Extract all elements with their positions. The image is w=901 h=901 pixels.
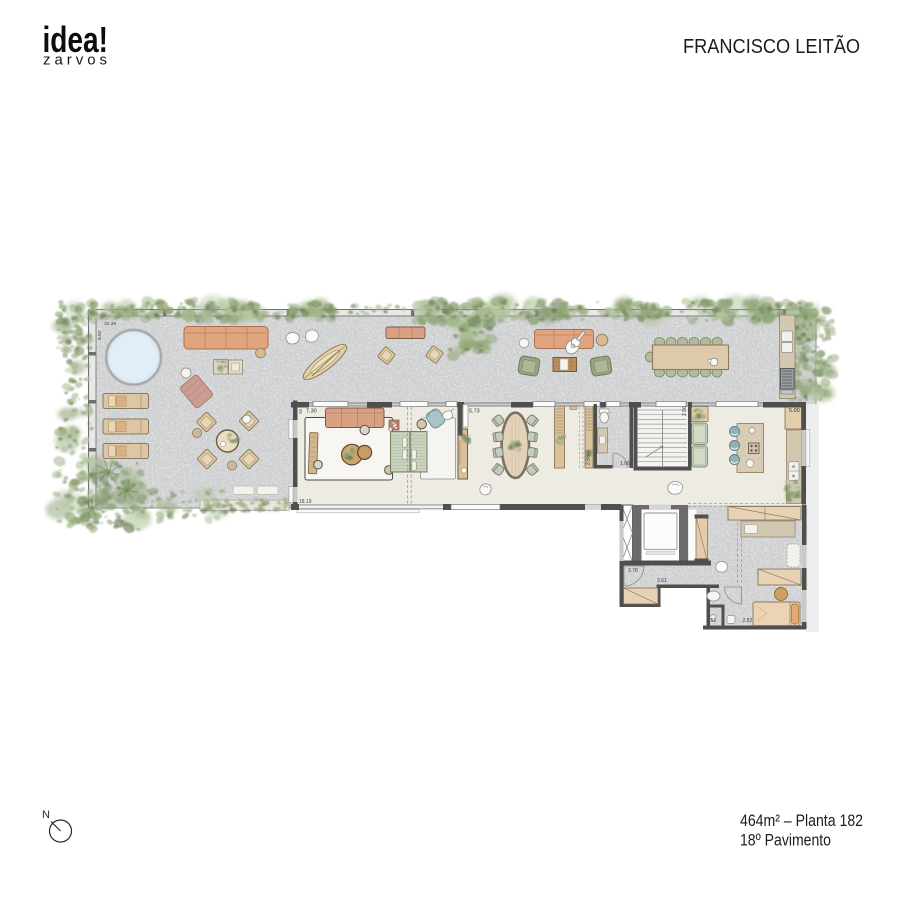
svg-text:SR: SR [299,408,303,414]
svg-text:7.30: 7.30 [306,409,317,415]
svg-text:18º Pavimento: 18º Pavimento [740,831,831,850]
svg-text:464m² – Planta 182: 464m² – Planta 182 [740,811,863,830]
svg-text:FRANCISCO LEITÃO: FRANCISCO LEITÃO [683,34,860,58]
svg-text:8.52: 8.52 [97,330,103,340]
svg-text:18.19: 18.19 [299,499,312,505]
svg-text:32.39: 32.39 [104,321,116,327]
svg-text:2.86: 2.86 [682,406,688,416]
svg-text:2.82: 2.82 [743,618,753,624]
svg-text:N: N [42,809,50,821]
svg-text:3.61: 3.61 [657,578,667,584]
svg-text:5.00: 5.00 [789,408,800,414]
svg-text:3.78: 3.78 [628,568,638,574]
svg-text:5.73: 5.73 [469,409,480,415]
svg-text:2.86: 2.86 [586,455,592,465]
svg-text:1.51: 1.51 [707,618,717,624]
svg-text:1.66: 1.66 [620,461,630,467]
